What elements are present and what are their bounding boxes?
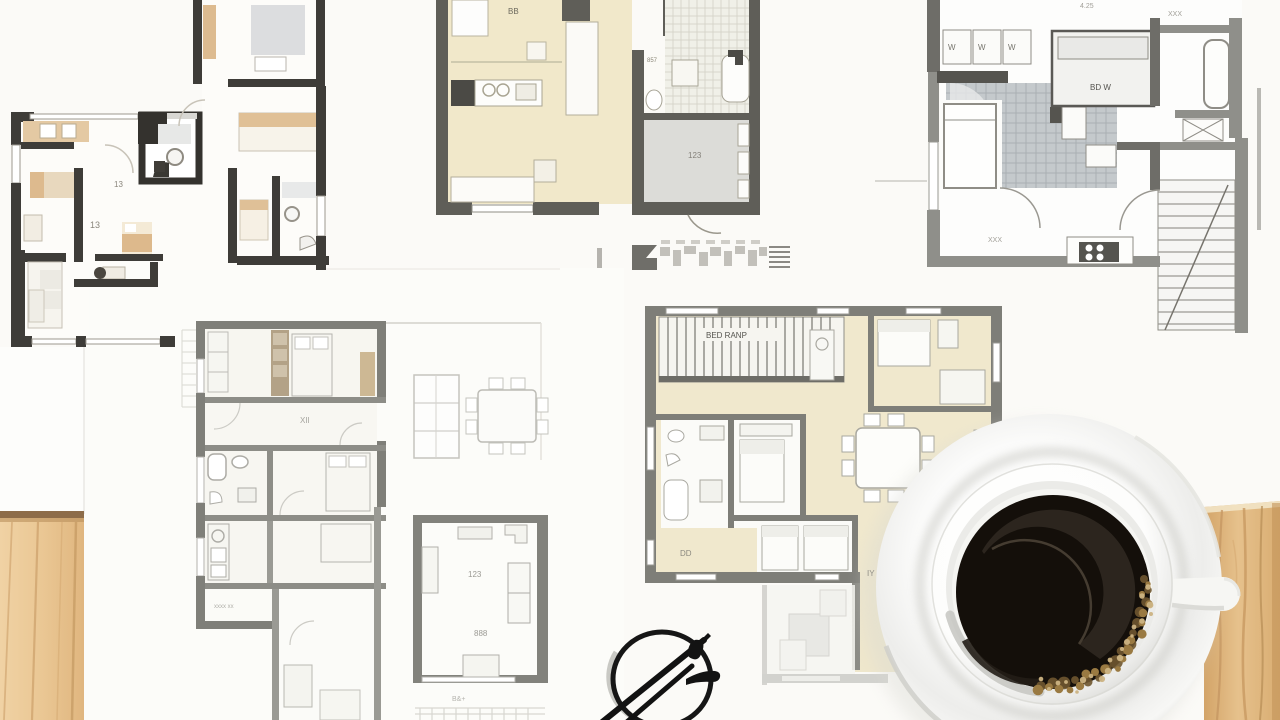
svg-text:13: 13: [90, 220, 100, 230]
svg-text:XXX: XXX: [988, 237, 1002, 244]
svg-text:123: 123: [468, 570, 482, 579]
svg-text:XXX: XXX: [1168, 11, 1182, 18]
svg-text:888: 888: [474, 629, 488, 638]
svg-text:XII: XII: [300, 416, 310, 425]
svg-text:W: W: [1008, 43, 1016, 52]
svg-text:123: 123: [688, 151, 702, 160]
svg-text:DD: DD: [680, 549, 692, 558]
svg-text:W: W: [978, 43, 986, 52]
svg-text:BD W: BD W: [1090, 83, 1111, 92]
svg-text:xxxx xx: xxxx xx: [214, 604, 234, 610]
svg-text:BB: BB: [508, 7, 519, 16]
svg-text:857: 857: [647, 58, 658, 64]
svg-text:B&+: B&+: [452, 696, 465, 703]
svg-text:13: 13: [114, 180, 123, 189]
svg-text:4.25: 4.25: [1080, 3, 1094, 10]
svg-text:BED RANP: BED RANP: [706, 331, 747, 340]
svg-text:W: W: [948, 43, 956, 52]
